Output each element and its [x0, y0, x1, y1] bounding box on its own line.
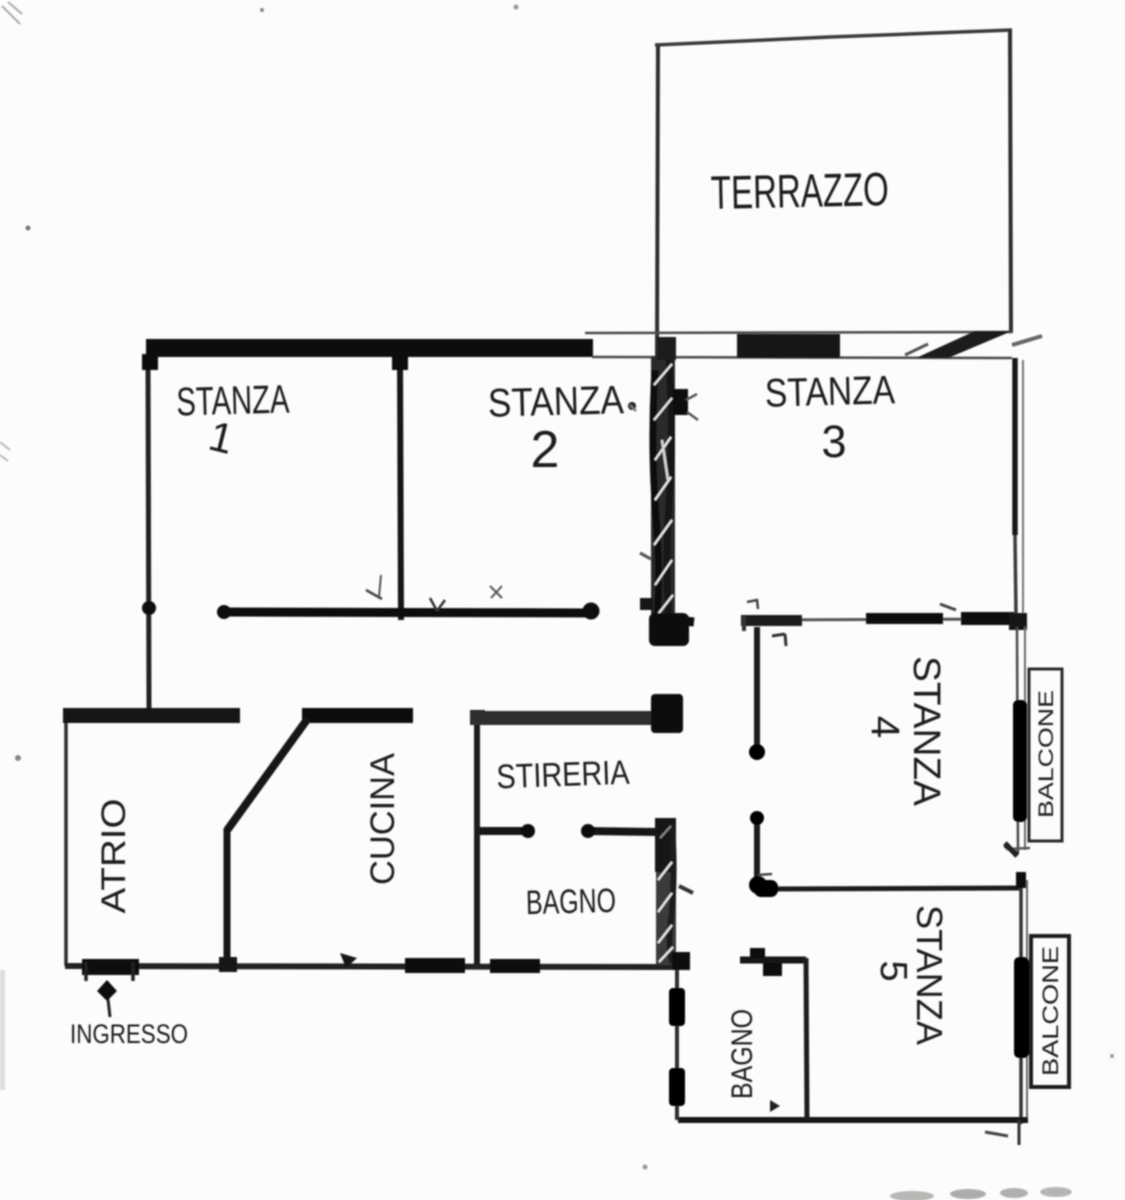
svg-text:TERRAZZO: TERRAZZO — [710, 162, 889, 219]
svg-text:BALCONE: BALCONE — [1038, 946, 1063, 1076]
svg-text:INGRESSO: INGRESSO — [70, 1019, 188, 1049]
svg-text:CUCINA: CUCINA — [364, 753, 402, 885]
svg-text:2: 2 — [531, 421, 560, 479]
svg-text:BALCONE: BALCONE — [1035, 690, 1058, 818]
svg-text:3: 3 — [821, 416, 846, 467]
svg-text:STANZA: STANZA — [905, 656, 947, 807]
svg-text:BAGNO: BAGNO — [726, 1009, 759, 1099]
svg-text:STANZA: STANZA — [487, 378, 624, 426]
svg-text:STANZA: STANZA — [764, 368, 895, 415]
svg-text:4: 4 — [863, 716, 907, 738]
svg-text:ATRIO: ATRIO — [95, 799, 133, 914]
svg-text:STANZA: STANZA — [909, 905, 950, 1045]
svg-text:5: 5 — [872, 960, 914, 981]
svg-text:STIRERIA: STIRERIA — [496, 754, 631, 797]
svg-text:BAGNO: BAGNO — [525, 882, 616, 922]
